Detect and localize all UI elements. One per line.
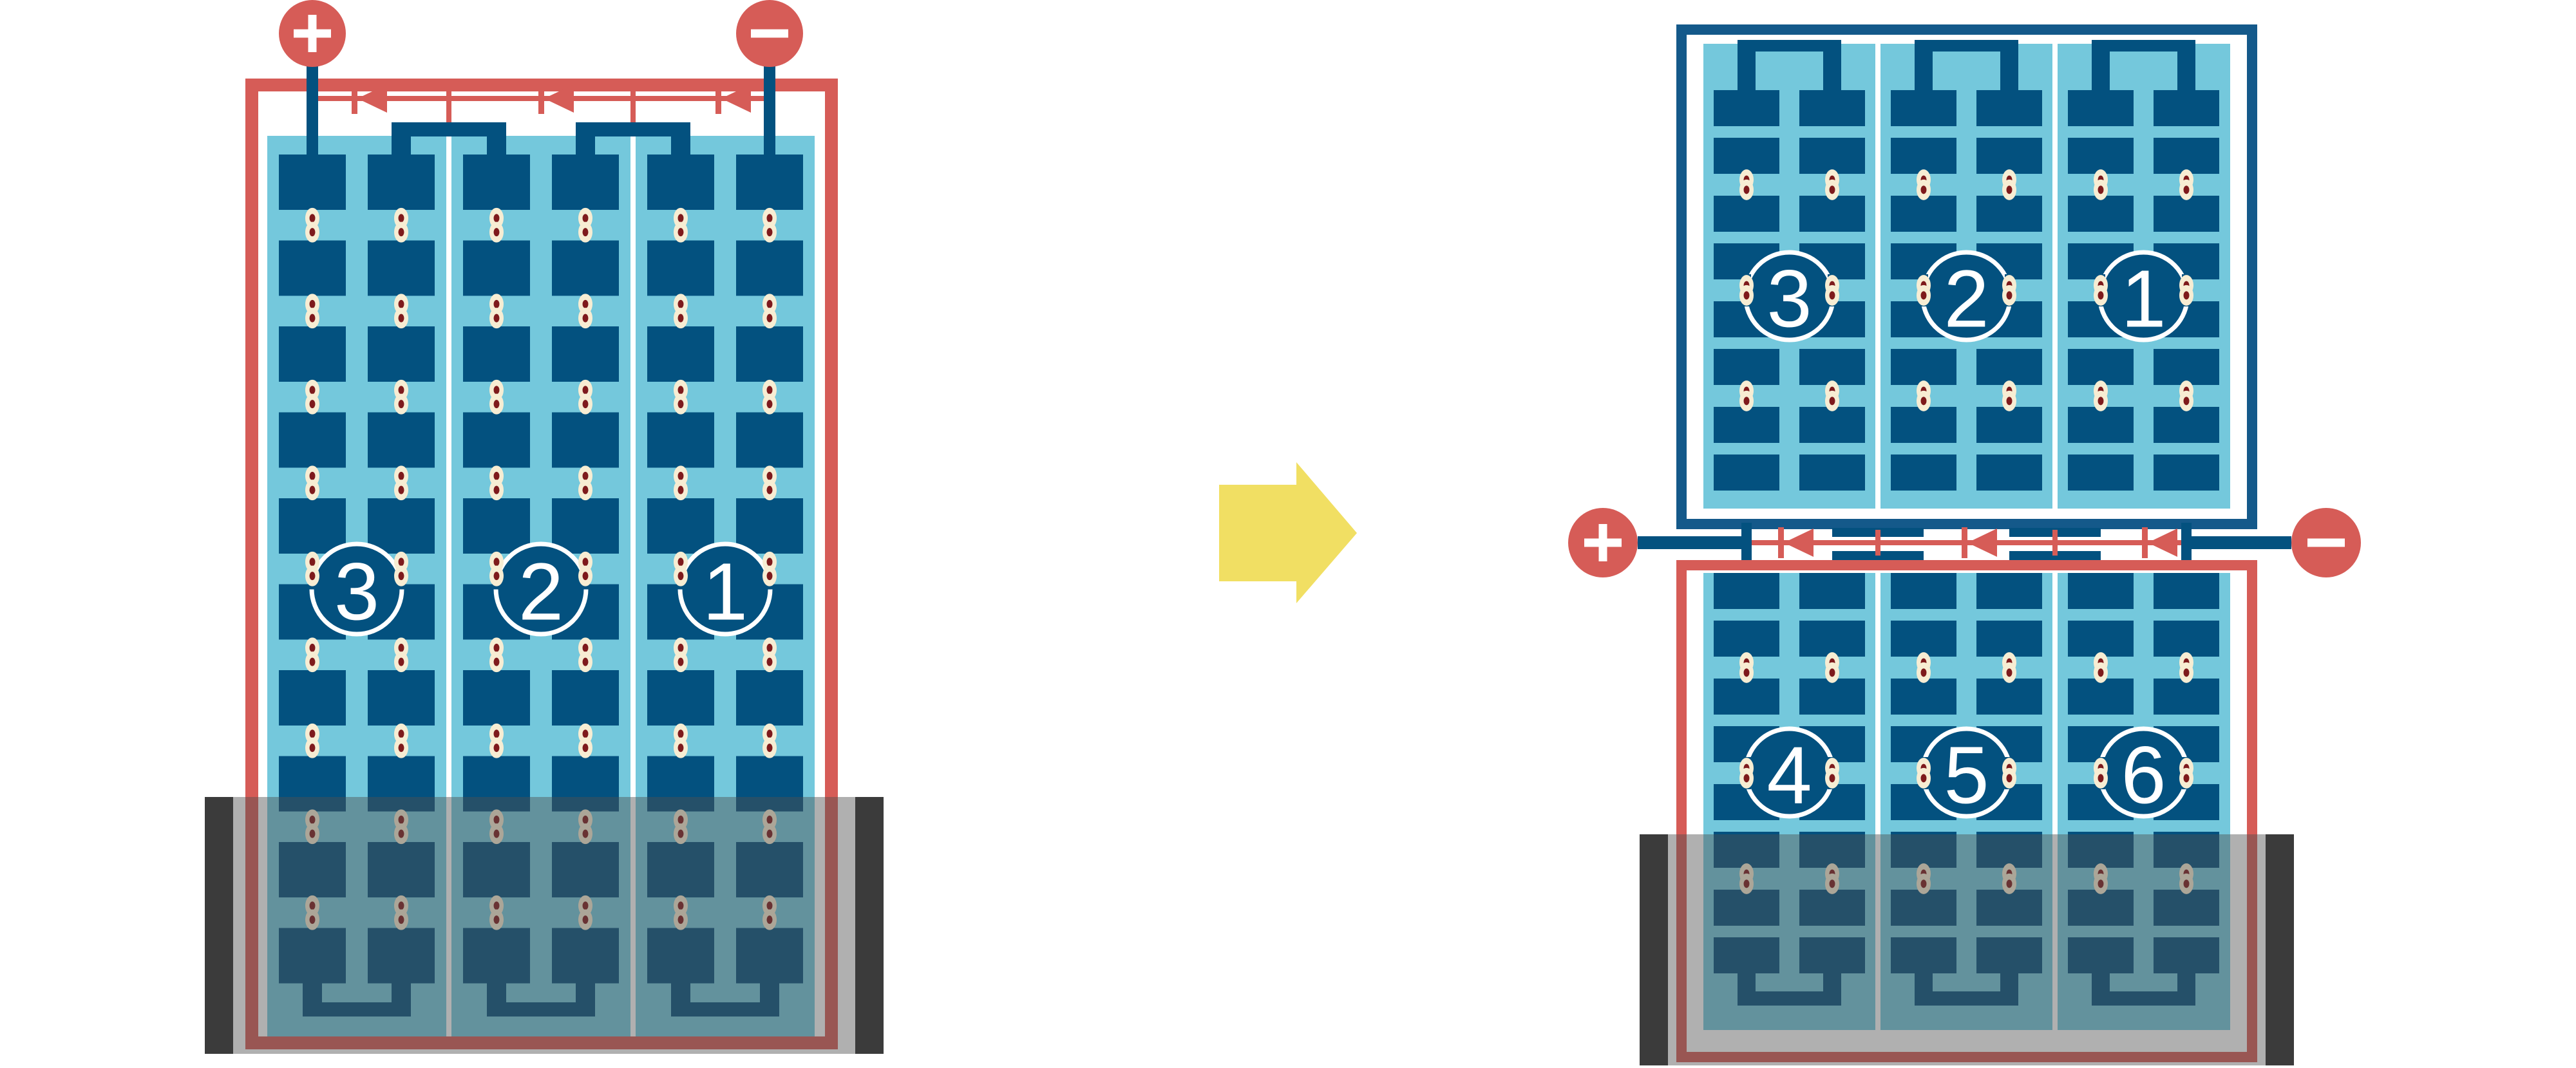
minus-glyph: [751, 30, 788, 38]
cell: [647, 498, 714, 554]
solder-dot-core: [1830, 668, 1835, 677]
solder-dot-core: [583, 572, 589, 580]
solder-dot-core: [2007, 185, 2012, 194]
top-bus-leg: [2177, 52, 2195, 91]
solder-dot-core: [399, 314, 404, 323]
top-bus-leg: [1738, 52, 1756, 91]
string-number-badge: 1: [680, 544, 770, 637]
string-number: 1: [703, 547, 748, 637]
bypass-diode-3-cathode-bar: [2142, 527, 2148, 558]
half-cell: [1976, 573, 2042, 609]
bypass-diode-2-cathode-bar: [538, 83, 544, 114]
solder-dot-core: [678, 658, 684, 666]
half-cell: [1714, 90, 1779, 126]
top-bus-bar: [392, 122, 506, 136]
bypass-diode-3-cathode-bar: [715, 83, 721, 114]
half-cell: [2154, 349, 2219, 385]
string-number: 5: [1944, 730, 1989, 821]
solder-dot-core: [583, 644, 589, 652]
cell: [552, 326, 619, 382]
solder-dot-core: [494, 658, 500, 666]
shade-overlay: [232, 797, 857, 1054]
cell: [279, 413, 346, 468]
plus-glyph-vertical: [308, 15, 317, 52]
solder-dot-core: [494, 386, 500, 394]
solder-dot-core: [1744, 291, 1750, 299]
solar-module-shading-diagram: 321321456: [0, 0, 2576, 1068]
half-cell: [1976, 349, 2042, 385]
half-cell: [1799, 621, 1865, 657]
solder-dot-core: [494, 486, 500, 494]
solder-dot-core: [583, 314, 589, 323]
cell: [552, 498, 619, 554]
plus-glyph-vertical: [1599, 524, 1607, 561]
top-bus-bar: [576, 122, 690, 136]
solder-dot-core: [767, 386, 773, 394]
solder-dot-core: [583, 472, 589, 480]
terminal-wire: [307, 64, 318, 193]
top-bus-leg: [1915, 52, 1933, 91]
solder-dot-core: [2098, 774, 2104, 782]
solder-dot-core: [310, 744, 316, 752]
top-bus-leg: [671, 136, 690, 156]
string-number-badge: 5: [1923, 729, 2011, 821]
solder-dot-core: [1830, 291, 1835, 299]
solder-dot-core: [399, 572, 404, 580]
solder-dot-core: [310, 314, 316, 323]
half-cell: [1799, 90, 1865, 126]
solder-dot-core: [678, 644, 684, 652]
solder-dot-core: [2007, 291, 2012, 299]
half-cell: [2068, 349, 2134, 385]
solder-dot-core: [767, 314, 773, 323]
cell: [368, 413, 435, 468]
shade-overlay: [1662, 834, 2272, 1065]
half-cell: [1976, 138, 2042, 174]
string-number-badge: 2: [1923, 252, 2011, 344]
half-cell: [1799, 407, 1865, 443]
solder-dot-core: [583, 729, 589, 738]
cell: [736, 326, 803, 382]
solder-dot-core: [767, 400, 773, 408]
solder-dot-core: [2184, 185, 2190, 194]
solder-dot-core: [678, 300, 684, 308]
cell: [736, 241, 803, 296]
solder-dot-core: [399, 557, 404, 566]
string-number-badge: 6: [2100, 729, 2188, 821]
cell: [647, 413, 714, 468]
solder-dot-core: [2184, 291, 2190, 299]
solder-dot-core: [678, 557, 684, 566]
solder-dot-core: [310, 729, 316, 738]
bypass-diode-1-cathode-bar: [352, 83, 357, 114]
half-cell: [2068, 573, 2134, 609]
solder-dot-core: [2184, 397, 2190, 405]
cell: [463, 241, 530, 296]
solder-dot-core: [583, 400, 589, 408]
solder-dot-core: [399, 214, 404, 222]
half-cell: [2154, 679, 2219, 715]
solder-dot-core: [1830, 774, 1835, 782]
cell: [463, 326, 530, 382]
diagram-canvas: 321321456: [0, 0, 2576, 1068]
top-bus-leg: [2092, 52, 2110, 91]
solder-dot-core: [1830, 397, 1835, 405]
solder-dot-core: [310, 214, 316, 222]
solder-dot-core: [583, 386, 589, 394]
solder-dot-core: [494, 557, 500, 566]
top-bus-bar: [2092, 40, 2195, 52]
solder-dot-core: [310, 228, 316, 236]
plus-terminal: [1568, 508, 1638, 577]
solder-dot-core: [1744, 185, 1750, 194]
half-cell: [1891, 573, 1956, 609]
solder-dot-core: [494, 300, 500, 308]
half-cell: [1714, 407, 1779, 443]
solder-dot-core: [583, 228, 589, 236]
cell: [552, 155, 619, 210]
diode-tick: [2052, 530, 2058, 556]
half-cell: [2068, 90, 2134, 126]
half-cell: [1976, 621, 2042, 657]
solder-dot-core: [494, 228, 500, 236]
solder-dot-core: [494, 729, 500, 738]
half-cell: [1891, 454, 1956, 491]
solder-dot-core: [1744, 774, 1750, 782]
string-separator: [2052, 44, 2058, 509]
shade-bar: [1640, 834, 1668, 1065]
solder-dot-core: [399, 472, 404, 480]
solder-dot-core: [310, 400, 316, 408]
string-number-badge: 4: [1746, 729, 1833, 821]
half-cell: [1891, 621, 1956, 657]
half-cell: [1799, 196, 1865, 232]
half-cell: [2154, 621, 2219, 657]
solder-dot-core: [494, 644, 500, 652]
solder-dot-core: [1921, 774, 1927, 782]
solder-dot-core: [399, 744, 404, 752]
diode-tick: [446, 89, 451, 122]
solder-dot-core: [678, 729, 684, 738]
string-number: 6: [2121, 730, 2166, 821]
top-bus-leg: [392, 136, 411, 156]
shade-bar: [205, 797, 233, 1054]
cell: [736, 413, 803, 468]
solder-dot-core: [2098, 185, 2104, 194]
half-cell: [2068, 407, 2134, 443]
cell: [552, 413, 619, 468]
string-number: 3: [334, 547, 379, 637]
half-cell: [1799, 573, 1865, 609]
minus-glyph: [2307, 539, 2345, 547]
diode-tick: [630, 89, 636, 122]
top-bus-bar: [1915, 40, 2018, 52]
solder-dot-core: [399, 729, 404, 738]
solder-dot-core: [399, 386, 404, 394]
terminal-wire: [1638, 536, 1741, 549]
half-cell: [1799, 349, 1865, 385]
half-cell: [1891, 196, 1956, 232]
solder-dot-core: [583, 658, 589, 666]
solder-dot-core: [2098, 291, 2104, 299]
half-cell: [1976, 90, 2042, 126]
minus-terminal: [736, 0, 803, 67]
half-cell: [1976, 679, 2042, 715]
cell: [552, 670, 619, 726]
solder-dot-core: [678, 228, 684, 236]
half-cell: [2154, 573, 2219, 609]
solder-dot-core: [678, 386, 684, 394]
solder-dot-core: [2184, 668, 2190, 677]
solder-dot-core: [678, 400, 684, 408]
solder-dot-core: [767, 557, 773, 566]
junction-end-bar: [2181, 523, 2192, 561]
cell: [647, 241, 714, 296]
string-number-badge: 3: [1746, 252, 1833, 344]
string-number-badge: 3: [312, 544, 402, 637]
solder-dot-core: [678, 572, 684, 580]
solder-dot-core: [2007, 668, 2012, 677]
shade-bar: [2266, 834, 2294, 1065]
half-cell: [1799, 679, 1865, 715]
solder-dot-core: [1830, 185, 1835, 194]
solder-dot-core: [399, 486, 404, 494]
half-cell: [1714, 621, 1779, 657]
half-cell: [1891, 679, 1956, 715]
solder-dot-core: [399, 228, 404, 236]
string-number: 3: [1766, 254, 1812, 344]
string-separator: [1875, 44, 1880, 509]
cell: [279, 241, 346, 296]
half-cell: [1714, 573, 1779, 609]
solder-dot-core: [494, 744, 500, 752]
solder-dot-core: [1744, 397, 1750, 405]
solder-dot-core: [767, 572, 773, 580]
half-cell: [2068, 621, 2134, 657]
solder-dot-core: [310, 472, 316, 480]
solder-dot-core: [767, 658, 773, 666]
solder-dot-core: [678, 486, 684, 494]
half-cell: [1891, 407, 1956, 443]
junction-end-bar: [1741, 523, 1752, 561]
solder-dot-core: [1921, 397, 1927, 405]
half-cell: [1891, 90, 1956, 126]
half-cell: [2068, 679, 2134, 715]
solder-dot-core: [1921, 185, 1927, 194]
cell: [368, 498, 435, 554]
half-cell: [2154, 454, 2219, 491]
solder-dot-core: [2007, 397, 2012, 405]
solder-dot-core: [678, 214, 684, 222]
solder-dot-core: [494, 400, 500, 408]
solder-dot-core: [310, 486, 316, 494]
half-cell: [2154, 407, 2219, 443]
half-cell: [1976, 196, 2042, 232]
transform-arrow: [1219, 462, 1357, 603]
half-cell: [1714, 454, 1779, 491]
solder-dot-core: [583, 557, 589, 566]
half-cell: [1891, 349, 1956, 385]
half-cell: [2068, 454, 2134, 491]
solder-dot-core: [767, 472, 773, 480]
top-bus-leg: [1823, 52, 1841, 91]
solder-dot-core: [2098, 397, 2104, 405]
solder-dot-core: [767, 744, 773, 752]
string-number: 4: [1766, 730, 1812, 821]
half-cell: [2154, 90, 2219, 126]
solder-dot-core: [310, 300, 316, 308]
cell: [736, 498, 803, 554]
bypass-diode-3: [2148, 529, 2177, 557]
solder-dot-core: [494, 214, 500, 222]
solder-dot-core: [2098, 668, 2104, 677]
half-cell: [1714, 349, 1779, 385]
bypass-diode-2-cathode-bar: [1962, 527, 1967, 558]
string-number: 2: [1944, 254, 1989, 344]
terminal-wire: [2192, 536, 2291, 549]
solder-dot-core: [678, 314, 684, 323]
solder-dot-core: [583, 744, 589, 752]
solder-dot-core: [678, 472, 684, 480]
half-cell: [2068, 196, 2134, 232]
bypass-diode-1-cathode-bar: [1778, 527, 1784, 558]
solder-dot-core: [767, 486, 773, 494]
cell: [463, 413, 530, 468]
solder-dot-core: [399, 400, 404, 408]
half-cell: [1976, 454, 2042, 491]
half-cell: [2068, 138, 2134, 174]
solder-dot-core: [494, 472, 500, 480]
half-cell: [1891, 138, 1956, 174]
plus-terminal: [279, 0, 346, 67]
solder-dot-core: [494, 314, 500, 323]
half-cell: [2154, 138, 2219, 174]
top-bus-leg: [487, 136, 506, 156]
solder-dot-core: [310, 557, 316, 566]
solder-dot-core: [583, 486, 589, 494]
cell: [647, 326, 714, 382]
half-cell: [1714, 196, 1779, 232]
solder-dot-core: [1744, 668, 1750, 677]
bypass-diode-1: [1784, 529, 1814, 557]
minus-terminal: [2291, 508, 2361, 577]
shade-overlays: [205, 797, 2294, 1065]
solder-dot-core: [2007, 774, 2012, 782]
cell: [279, 498, 346, 554]
half-cell: [1976, 407, 2042, 443]
solder-dot-core: [399, 644, 404, 652]
solder-dot-core: [583, 300, 589, 308]
string-number-badge: 2: [496, 544, 586, 637]
solder-dot-core: [310, 386, 316, 394]
top-bus-bar: [1738, 40, 1841, 52]
cell: [279, 670, 346, 726]
solder-dot-core: [1921, 668, 1927, 677]
solder-dot-core: [1921, 291, 1927, 299]
solder-dot-core: [399, 658, 404, 666]
solder-dot-core: [583, 214, 589, 222]
cell: [463, 155, 530, 210]
solder-dot-core: [767, 228, 773, 236]
solder-dot-core: [310, 644, 316, 652]
half-cell: [1714, 138, 1779, 174]
cell: [552, 241, 619, 296]
cell: [463, 670, 530, 726]
half-cell: [1799, 454, 1865, 491]
string-number-badge: 1: [2100, 252, 2188, 344]
string-number: 2: [518, 547, 563, 637]
solder-dot-core: [310, 658, 316, 666]
top-bus-leg: [576, 136, 595, 156]
solder-dot-core: [767, 729, 773, 738]
solder-dot-core: [399, 300, 404, 308]
solder-dot-core: [767, 214, 773, 222]
cell: [368, 241, 435, 296]
solder-dot-core: [678, 744, 684, 752]
cell: [463, 498, 530, 554]
cell: [279, 326, 346, 382]
cell: [647, 670, 714, 726]
right-top-half-module: 321: [1681, 30, 2252, 524]
string-number: 1: [2121, 254, 2166, 344]
half-cell: [2154, 196, 2219, 232]
half-cell: [1799, 138, 1865, 174]
diode-tick: [1875, 530, 1880, 556]
half-cell: [1714, 679, 1779, 715]
cell: [368, 155, 435, 210]
solder-dot-core: [767, 644, 773, 652]
solder-dot-core: [2184, 774, 2190, 782]
shade-bar: [855, 797, 884, 1054]
cell: [647, 155, 714, 210]
solder-dot-core: [767, 300, 773, 308]
top-bus-leg: [2000, 52, 2018, 91]
bypass-diode-2: [1967, 529, 1997, 557]
solder-dot-core: [494, 572, 500, 580]
cell: [368, 670, 435, 726]
cell: [736, 670, 803, 726]
terminal-wire: [764, 64, 775, 193]
solder-dot-core: [310, 572, 316, 580]
cell: [368, 326, 435, 382]
